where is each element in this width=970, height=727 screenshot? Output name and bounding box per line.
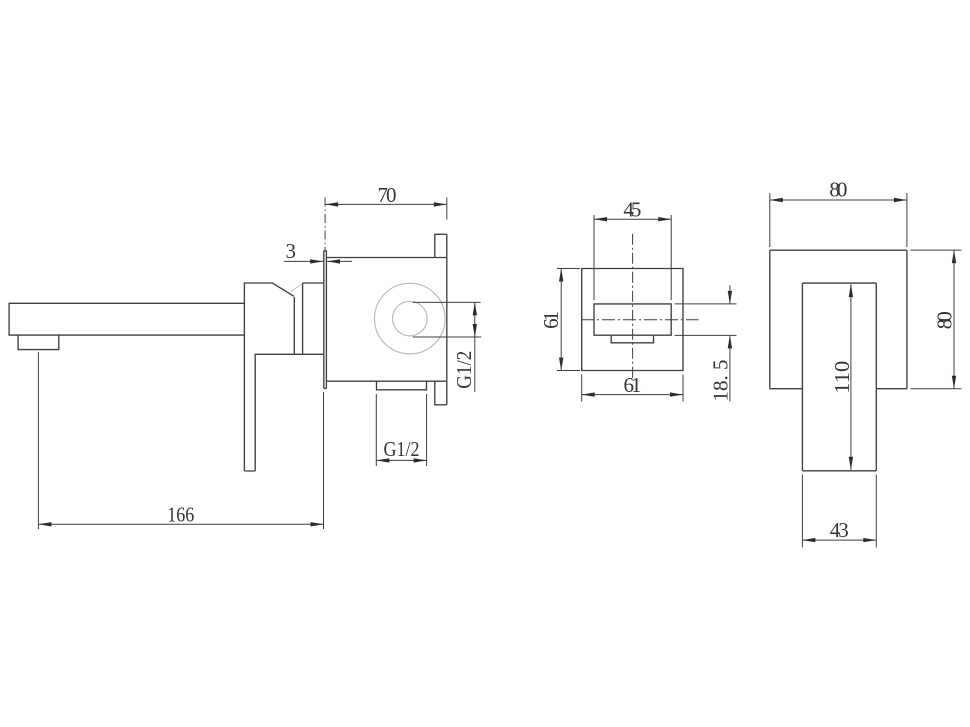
svg-text:45: 45 xyxy=(623,198,641,222)
svg-text:61: 61 xyxy=(624,373,642,397)
svg-text:18. 5: 18. 5 xyxy=(708,360,732,402)
svg-text:80: 80 xyxy=(933,311,957,329)
svg-text:110: 110 xyxy=(830,361,854,394)
svg-text:43: 43 xyxy=(830,518,849,542)
svg-text:70: 70 xyxy=(378,183,397,207)
svg-text:G1/2: G1/2 xyxy=(452,351,476,389)
svg-text:61: 61 xyxy=(539,311,563,329)
svg-text:G1/2: G1/2 xyxy=(384,437,420,461)
svg-text:3: 3 xyxy=(285,239,296,263)
svg-text:166: 166 xyxy=(167,503,194,527)
svg-text:80: 80 xyxy=(829,178,847,202)
